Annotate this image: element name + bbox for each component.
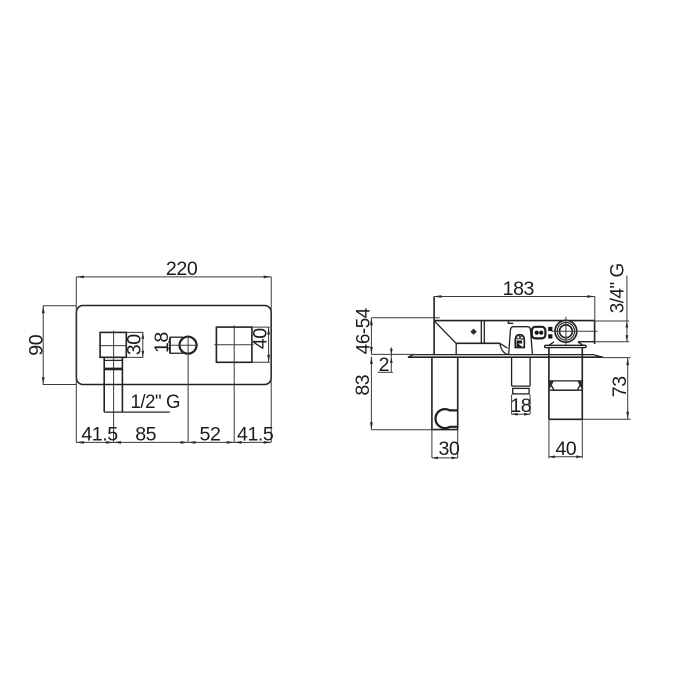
svg-text:73: 73 [609, 376, 631, 397]
svg-text:41.5: 41.5 [237, 423, 274, 445]
svg-text:40: 40 [555, 438, 576, 460]
svg-text:90: 90 [26, 334, 48, 355]
svg-text:41.5: 41.5 [81, 423, 118, 445]
svg-text:18: 18 [151, 332, 173, 353]
svg-text:220: 220 [166, 258, 198, 280]
svg-text:85: 85 [135, 423, 156, 445]
svg-text:52: 52 [200, 423, 221, 445]
svg-text:18: 18 [510, 395, 531, 417]
svg-text:30: 30 [124, 334, 146, 355]
svg-text:1/2" G: 1/2" G [131, 391, 181, 413]
svg-text:3/4" G: 3/4" G [607, 263, 629, 313]
svg-text:83: 83 [352, 374, 374, 395]
svg-text:46-54: 46-54 [352, 308, 374, 355]
svg-text:183: 183 [503, 278, 535, 300]
svg-text:40: 40 [249, 328, 271, 349]
svg-text:30: 30 [438, 438, 459, 460]
svg-text:2: 2 [379, 354, 389, 376]
